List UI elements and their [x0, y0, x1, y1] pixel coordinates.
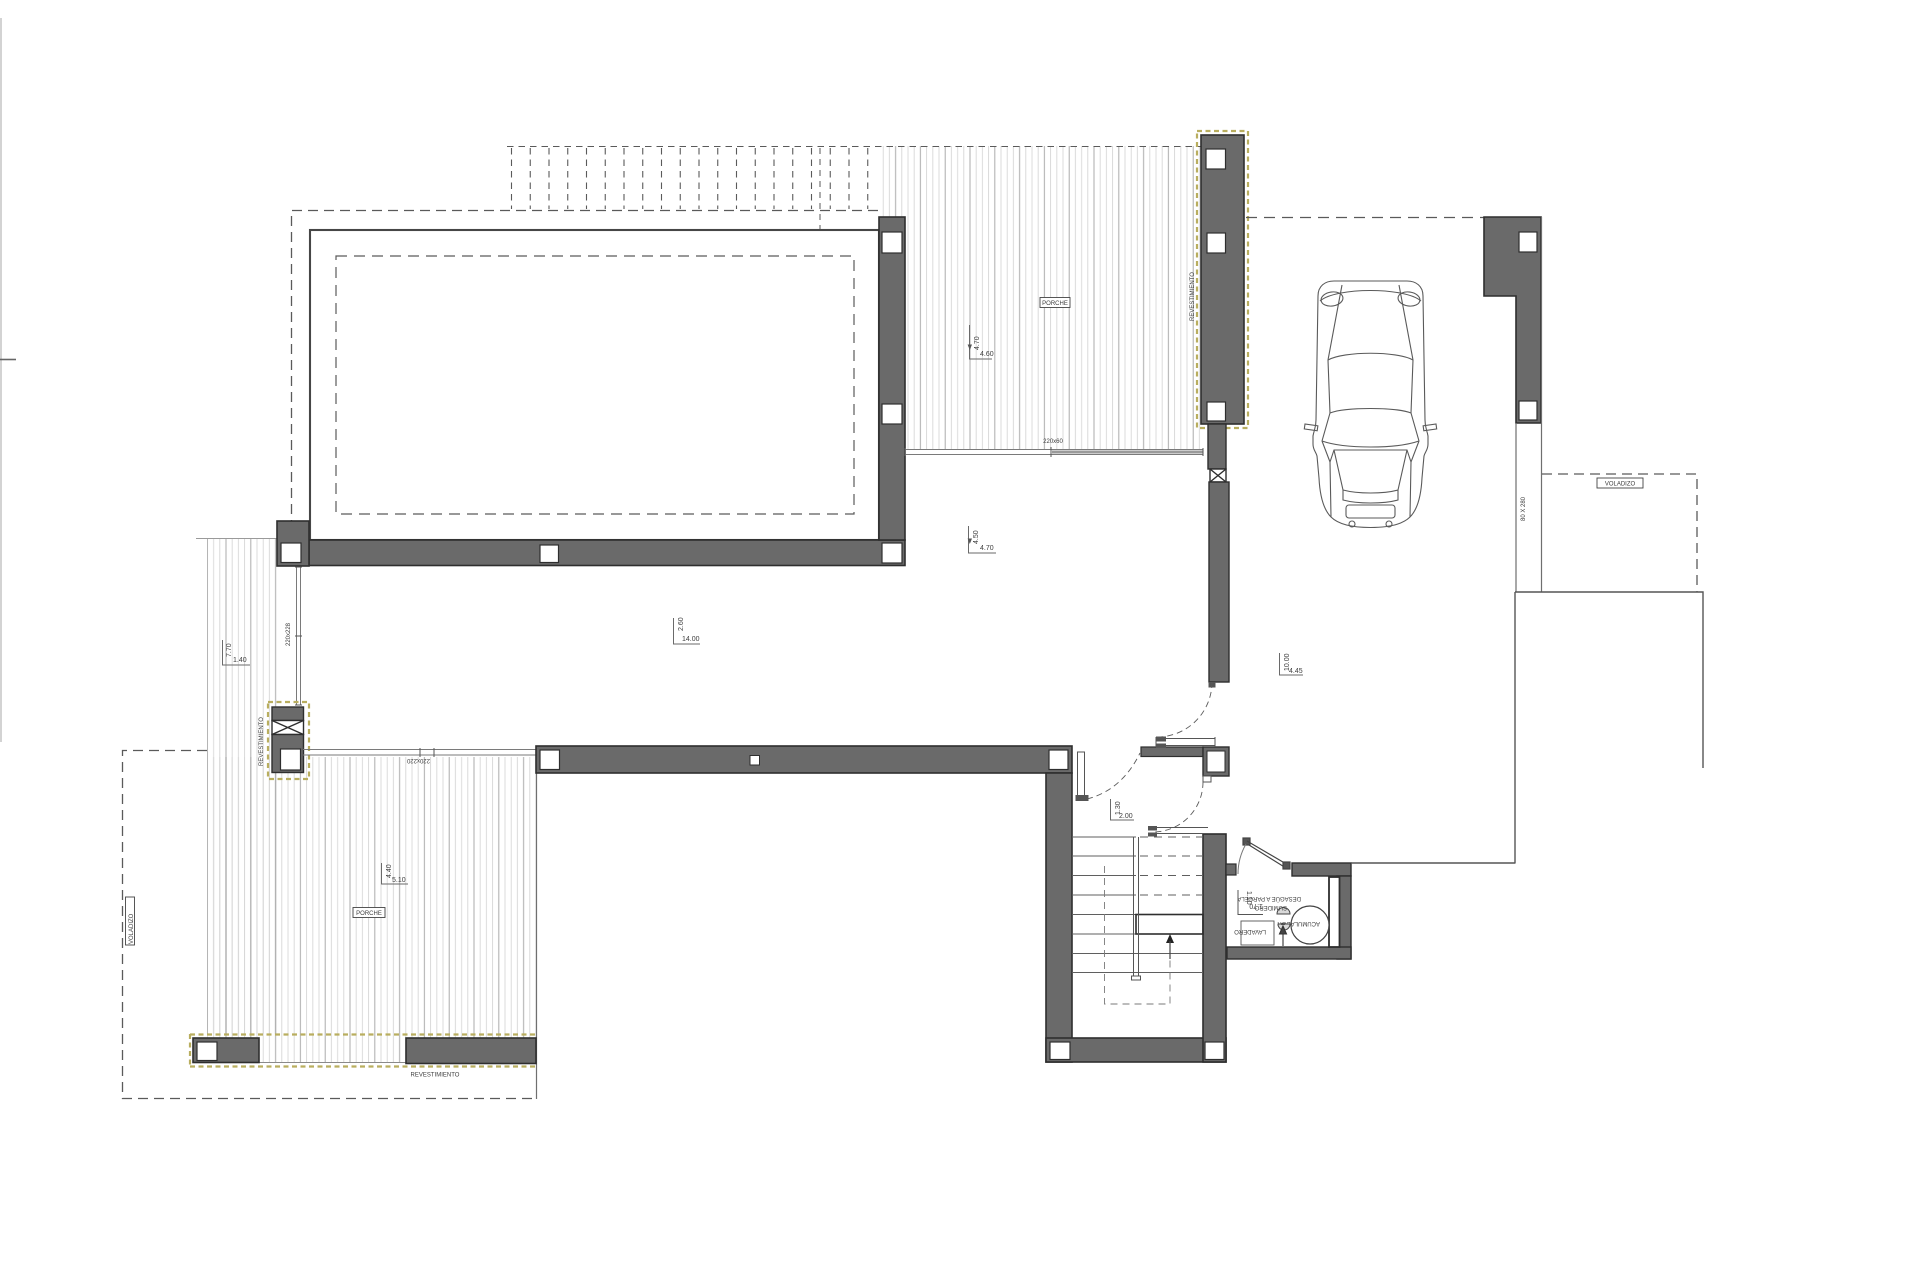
- svg-text:REVESTIMIENTO: REVESTIMIENTO: [1190, 272, 1196, 321]
- svg-text:220x220: 220x220: [406, 757, 430, 763]
- svg-text:220x228: 220x228: [286, 622, 292, 646]
- svg-text:220x60: 220x60: [1043, 439, 1063, 445]
- svg-text:4.70: 4.70: [980, 545, 994, 552]
- svg-text:5.10: 5.10: [392, 877, 406, 884]
- svg-text:4.45: 4.45: [1289, 668, 1303, 675]
- svg-text:VOLADIZO: VOLADIZO: [1605, 482, 1636, 488]
- svg-text:REVESTIMIENTO: REVESTIMIENTO: [259, 717, 265, 766]
- svg-text:PORCHE: PORCHE: [356, 911, 382, 917]
- svg-text:4.60: 4.60: [980, 351, 994, 358]
- svg-text:1.40: 1.40: [233, 657, 247, 664]
- svg-text:REVESTIMIENTO: REVESTIMIENTO: [411, 1073, 460, 1079]
- svg-text:2.60: 2.60: [678, 617, 685, 631]
- svg-text:4.50: 4.50: [973, 530, 980, 544]
- svg-text:14.00: 14.00: [682, 636, 700, 643]
- svg-text:7.70: 7.70: [226, 643, 233, 657]
- svg-text:PORCHE: PORCHE: [1042, 301, 1068, 307]
- svg-text:LAVADERO: LAVADERO: [1234, 928, 1266, 934]
- svg-text:1.70: 1.70: [1249, 902, 1263, 909]
- svg-text:80 X 280: 80 X 280: [1521, 496, 1527, 521]
- svg-text:4.40: 4.40: [386, 864, 393, 878]
- svg-text:2.00: 2.00: [1119, 813, 1133, 820]
- svg-text:VOLADIZO: VOLADIZO: [129, 913, 135, 944]
- svg-text:4.70: 4.70: [974, 336, 981, 350]
